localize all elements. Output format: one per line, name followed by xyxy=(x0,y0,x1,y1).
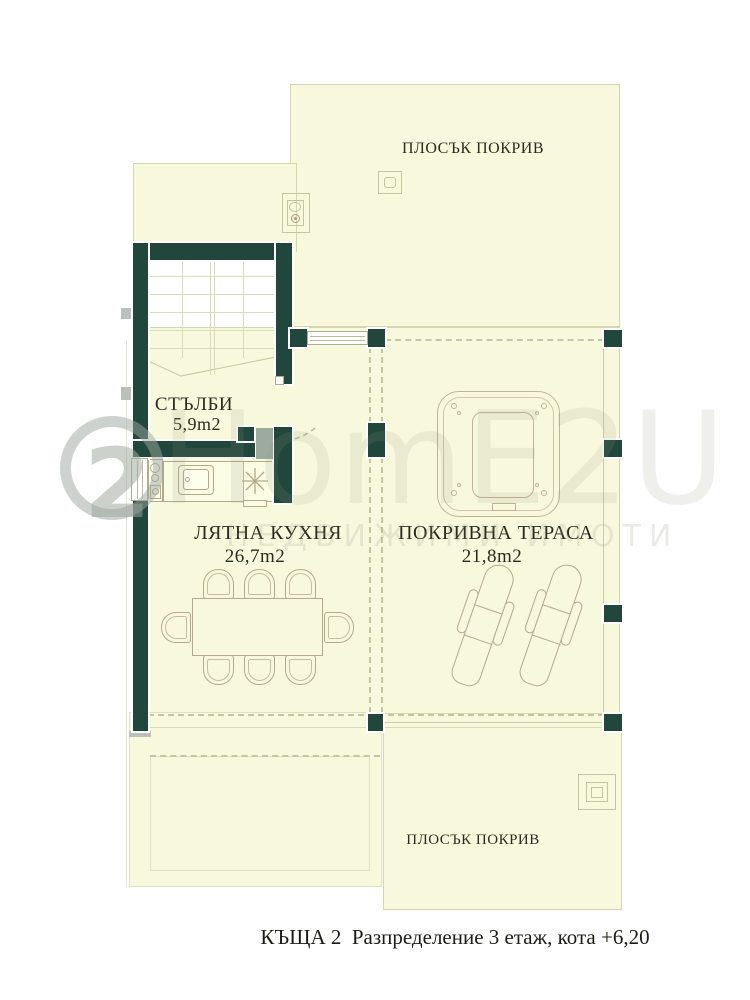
window-mullion-line xyxy=(310,340,365,341)
wall-scupper-2 xyxy=(121,387,133,400)
stove-burner-icon xyxy=(242,468,268,494)
wall-end-cap xyxy=(129,731,151,737)
terrace-pillar-nw2 xyxy=(368,329,385,347)
room-label-flat-roof-bottom: ПЛОСЪК ПОКРИВ xyxy=(373,832,573,849)
room-label-roof-terrace: ПОКРИВНА ТЕРАСА xyxy=(396,522,596,545)
terrace-pillar-ne xyxy=(604,330,622,347)
drawing-caption: КЪЩА 2 Разпределение 3 етаж, кота +6,20 xyxy=(195,925,715,950)
terrace-pillar-east xyxy=(604,605,622,622)
door-hinge xyxy=(275,376,284,385)
kitchen-left-wall xyxy=(133,501,148,731)
wall-scupper-1 xyxy=(121,308,133,319)
terrace-pillar-nw1 xyxy=(290,329,307,347)
terrace-pillar-mid-west xyxy=(368,423,385,457)
terrace-pillar-sw xyxy=(368,714,383,731)
stair-right-wall xyxy=(276,243,292,384)
stair-left-wall xyxy=(133,243,148,458)
floor-plan-sheet: ПЛОСЪК ПОКРИВ СТЪЛБИ 5,9m2 ЛЯТНА КУХНЯ 2… xyxy=(0,0,750,1000)
stair-door-leaf xyxy=(256,428,273,459)
stair-top-wall xyxy=(133,243,290,260)
stair-break-line xyxy=(148,357,276,376)
kitchen-left-window xyxy=(131,458,148,501)
room-area-roof-terrace: 21,8m2 xyxy=(392,546,592,568)
room-label-summer-kitchen: ЛЯТНА КУХНЯ xyxy=(168,522,368,545)
window-mullion-line xyxy=(137,460,138,499)
window-mullion-line xyxy=(310,336,365,337)
stair-bottom-wall xyxy=(133,441,255,457)
terrace-pillar-se xyxy=(604,714,622,731)
terrace-pillar-mid-east xyxy=(604,440,622,457)
room-label-stairs: СТЪЛБИ xyxy=(144,394,244,416)
room-area-summer-kitchen: 26,7m2 xyxy=(155,546,355,568)
window-mullion-line xyxy=(142,460,143,499)
room-label-flat-roof-top: ПЛОСЪК ПОКРИВ xyxy=(373,140,573,158)
kitchen-corner-pillar xyxy=(274,427,292,503)
terrace-north-window xyxy=(307,331,368,345)
room-area-stairs: 5,9m2 xyxy=(147,414,247,435)
